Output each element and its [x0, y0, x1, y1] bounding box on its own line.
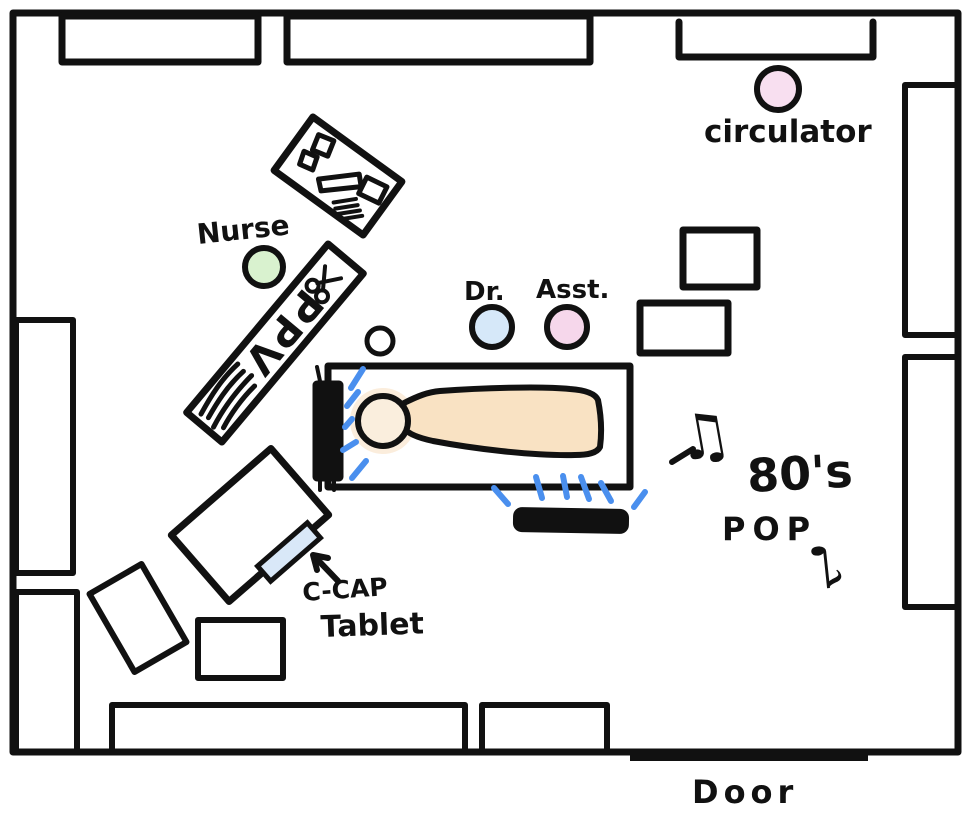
storage-box-lower [640, 303, 728, 353]
patient-head [358, 396, 408, 446]
ccap-label: C-CAP [301, 572, 388, 607]
small-circle-marker [367, 328, 393, 354]
stool-outline [90, 564, 187, 672]
circulator-label: circulator [704, 114, 872, 150]
assistant-label: Asst. [536, 275, 609, 305]
speaker [513, 507, 629, 534]
music-note-beamed-icon: ♫ [670, 395, 737, 477]
head-of-bed-device [313, 367, 343, 490]
door-label: Door [692, 773, 798, 811]
music-genre-label-line2: POP [722, 510, 817, 548]
shelf-top-right [679, 22, 873, 57]
speaker-sound-dashes [494, 476, 645, 507]
tablet-label: Tablet [320, 606, 424, 645]
storage-box-upper [683, 230, 757, 287]
cabinet-left-lower [16, 592, 77, 752]
patient-body [403, 388, 602, 456]
or-room-sketch: PPV [0, 0, 976, 820]
counter-bottom-center [482, 705, 607, 752]
nurse-label: Nurse [195, 208, 291, 251]
assistant-position [547, 307, 587, 347]
doctor-position [472, 307, 512, 347]
supply-box [198, 620, 283, 678]
cabinet-right-upper [905, 85, 958, 335]
cabinet-left-upper [16, 320, 73, 573]
nurse-position [245, 248, 283, 286]
instrument-tray-table [274, 117, 402, 236]
counter-top-left [62, 16, 258, 62]
counter-bottom-left [112, 705, 465, 752]
music-genre-label-line1: 80's [746, 444, 854, 503]
circulator-position [757, 68, 799, 110]
stool [90, 564, 187, 672]
ccap-tablet [258, 523, 321, 581]
ccap-tablet-screen [258, 523, 321, 581]
counter-top-center [287, 16, 590, 62]
cabinet-right-lower [905, 357, 958, 607]
device-body [313, 381, 343, 481]
music-note-single-icon: ♪ [805, 530, 849, 601]
door-opening [630, 752, 868, 761]
doctor-label: Dr. [464, 277, 505, 307]
